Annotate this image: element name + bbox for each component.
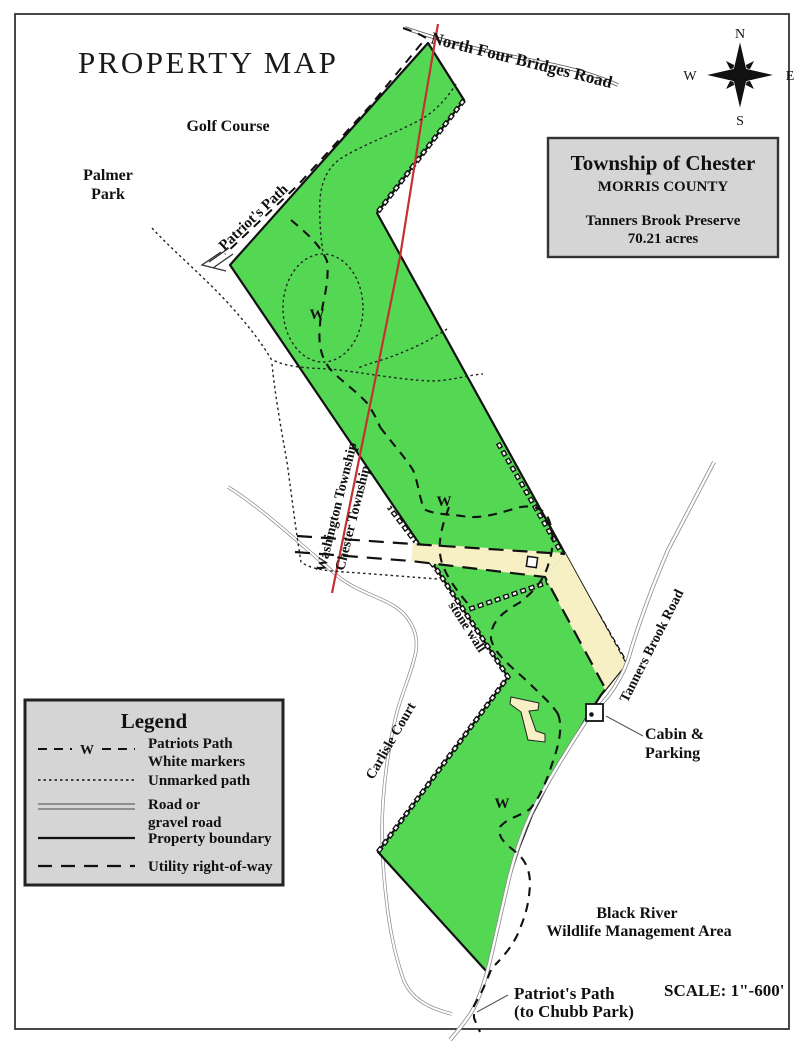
palmer-park-label-line1: Palmer	[83, 167, 133, 184]
legend-item-3-line1: Road or	[148, 797, 200, 813]
page-title: PROPERTY MAP	[78, 45, 338, 80]
info-county: MORRIS COUNTY	[598, 179, 729, 195]
patriots-path-bottom-label-line2: (to Chubb Park)	[514, 1002, 634, 1021]
trail-w-marker-3: W	[495, 796, 510, 812]
legend-title: Legend	[121, 709, 188, 733]
patriots-path-bottom-label-line1: Patriot's Path	[514, 984, 615, 1003]
property-map-page: N S W E Township of Chester MORRIS COUNT…	[0, 0, 810, 1050]
info-preserve: Tanners Brook Preserve	[586, 213, 741, 229]
structure-square	[526, 556, 537, 567]
legend-item-1-line1: Patriots Path	[148, 736, 233, 752]
compass-s-label: S	[736, 114, 744, 129]
info-township: Township of Chester	[571, 151, 756, 175]
compass-w-label: W	[683, 69, 697, 84]
compass-e-label: E	[786, 69, 795, 84]
black-river-label-line2: Wildlife Management Area	[546, 923, 731, 940]
cabin-label-line2: Parking	[645, 745, 700, 762]
legend-w-marker: W	[80, 743, 94, 758]
golf-course-label: Golf Course	[186, 118, 269, 135]
compass-n-label: N	[735, 27, 745, 42]
palmer-park-label-line2: Park	[91, 186, 125, 203]
trail-w-marker-1: W	[310, 307, 325, 323]
scale-label: SCALE: 1"-600'	[664, 981, 784, 1000]
cabin-dot-icon	[589, 712, 594, 717]
legend-panel: Legend W Patriots Path White markers Unm…	[25, 700, 283, 885]
cabin-label-line1: Cabin &	[645, 726, 704, 743]
legend-item-3-line2: gravel road	[148, 815, 222, 831]
legend-item-5-line1: Utility right-of-way	[148, 859, 273, 875]
legend-item-4-line1: Property boundary	[148, 831, 272, 847]
legend-item-2-line1: Unmarked path	[148, 773, 251, 789]
legend-item-1-line2: White markers	[148, 754, 245, 770]
info-acreage: 70.21 acres	[628, 231, 699, 247]
trail-w-marker-2: W	[437, 494, 452, 510]
map-canvas: N S W E Township of Chester MORRIS COUNT…	[0, 0, 810, 1050]
info-box: Township of Chester MORRIS COUNTY Tanner…	[548, 138, 778, 257]
black-river-label-line1: Black River	[596, 905, 677, 922]
